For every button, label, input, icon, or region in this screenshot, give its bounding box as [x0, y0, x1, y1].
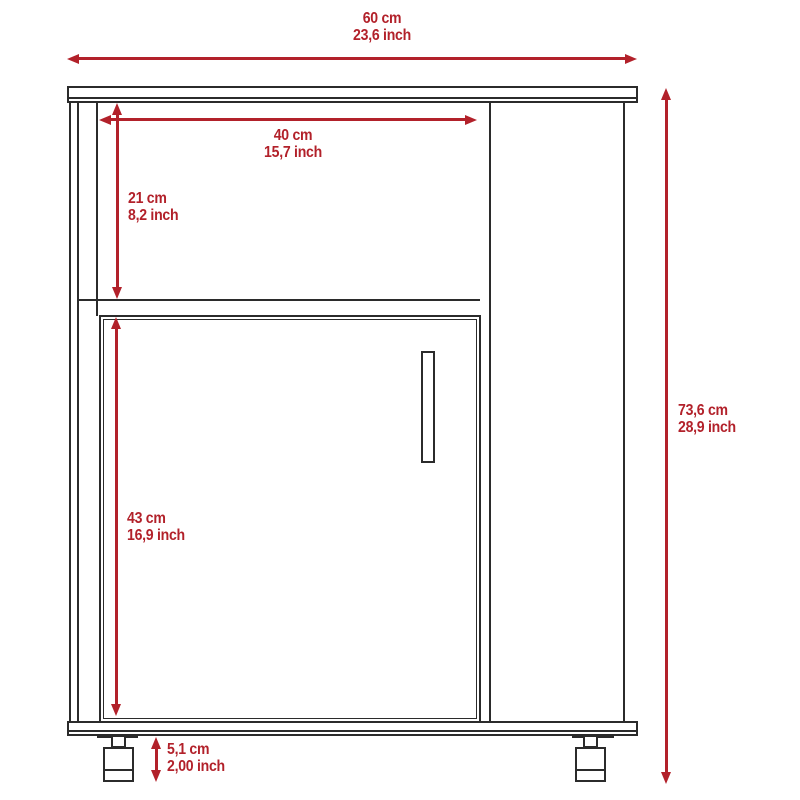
- arrowhead-up-icon: [112, 103, 122, 115]
- right-caster: [575, 747, 606, 782]
- arrowhead-right-icon: [465, 115, 477, 125]
- arrowhead-down-icon: [112, 287, 122, 299]
- overall-width-label: 60 cm 23,6 inch: [294, 10, 470, 44]
- overall-width-inch: 23,6 inch: [294, 27, 470, 44]
- overall-width-cm: 60 cm: [294, 10, 470, 27]
- arrowhead-up-icon: [151, 737, 161, 749]
- arrowhead-down-icon: [111, 704, 121, 716]
- dimension-diagram: 60 cm 23,6 inch 40 cm 15,7 inch 21 cm 8,…: [0, 0, 800, 800]
- opening-width-dimension-line: [111, 118, 465, 121]
- leg-height-dimension-line: [155, 748, 158, 771]
- arrowhead-up-icon: [111, 317, 121, 329]
- opening-left-line: [96, 102, 98, 316]
- opening-height-inch: 8,2 inch: [128, 207, 178, 224]
- leg-height-label: 5,1 cm 2,00 inch: [167, 741, 225, 775]
- opening-height-label: 21 cm 8,2 inch: [128, 190, 178, 224]
- arrowhead-left-icon: [67, 54, 79, 64]
- overall-height-dimension-line: [665, 100, 668, 772]
- right-side-outer-line: [623, 102, 625, 722]
- door-height-dimension-line: [115, 329, 118, 704]
- opening-width-cm: 40 cm: [205, 127, 381, 144]
- arrowhead-down-icon: [661, 772, 671, 784]
- left-side-inner-line: [77, 102, 79, 722]
- leg-height-inch: 2,00 inch: [167, 758, 225, 775]
- door-height-inch: 16,9 inch: [127, 527, 185, 544]
- top-panel-edge-line: [69, 97, 636, 99]
- leg-height-cm: 5,1 cm: [167, 741, 225, 758]
- base-panel-edge-line: [69, 730, 636, 732]
- left-side-outer-line: [69, 102, 71, 722]
- opening-width-label: 40 cm 15,7 inch: [205, 127, 381, 161]
- arrowhead-right-icon: [625, 54, 637, 64]
- left-caster: [103, 747, 134, 782]
- overall-width-dimension-line: [79, 57, 625, 60]
- opening-width-inch: 15,7 inch: [205, 144, 381, 161]
- overall-height-inch: 28,9 inch: [678, 419, 736, 436]
- overall-height-label: 73,6 cm 28,9 inch: [678, 402, 736, 436]
- left-caster-wheel-line: [105, 769, 132, 771]
- cabinet-top-panel: [67, 86, 638, 103]
- cabinet-base-panel: [67, 721, 638, 736]
- arrowhead-down-icon: [151, 770, 161, 782]
- opening-height-cm: 21 cm: [128, 190, 178, 207]
- arrowhead-up-icon: [661, 88, 671, 100]
- arrowhead-left-icon: [99, 115, 111, 125]
- door-height-label: 43 cm 16,9 inch: [127, 510, 185, 544]
- shelf-line: [78, 299, 480, 301]
- overall-height-cm: 73,6 cm: [678, 402, 736, 419]
- opening-height-dimension-line: [116, 115, 119, 287]
- door-handle: [421, 351, 435, 463]
- right-caster-wheel-line: [577, 769, 604, 771]
- door-height-cm: 43 cm: [127, 510, 185, 527]
- right-partition-line: [489, 102, 491, 722]
